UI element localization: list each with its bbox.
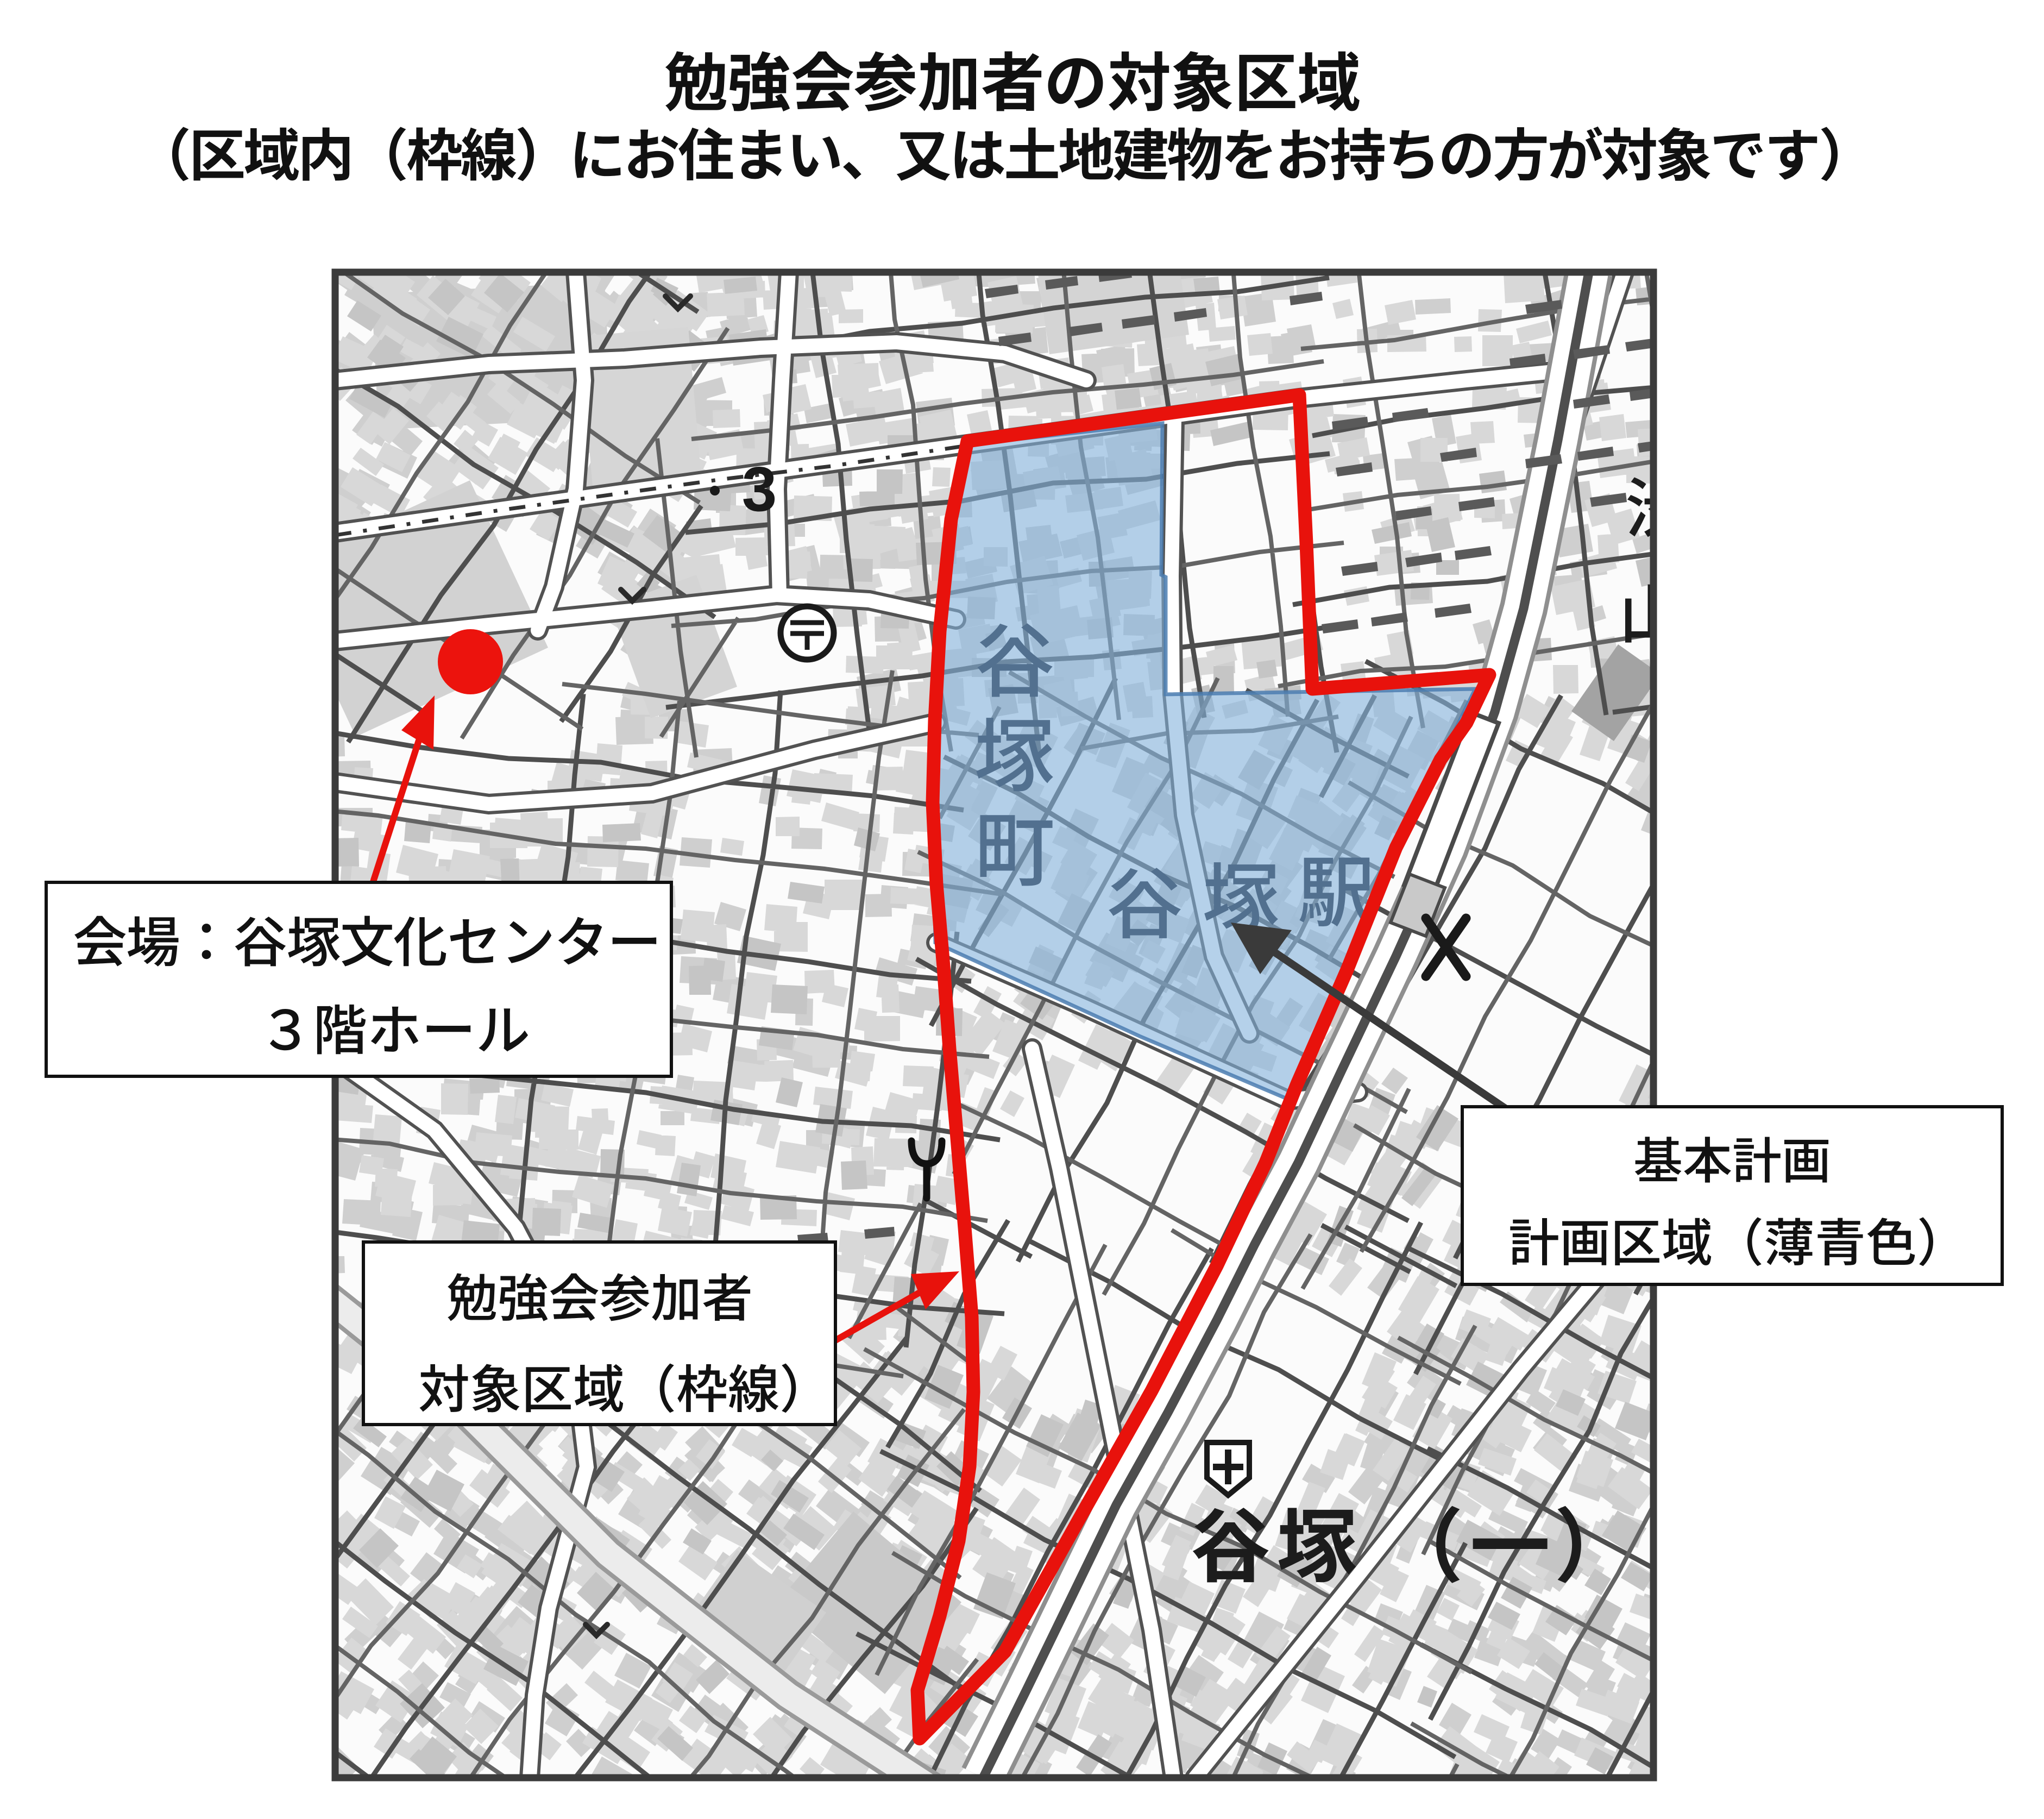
svg-text:3: 3 [742, 454, 777, 524]
